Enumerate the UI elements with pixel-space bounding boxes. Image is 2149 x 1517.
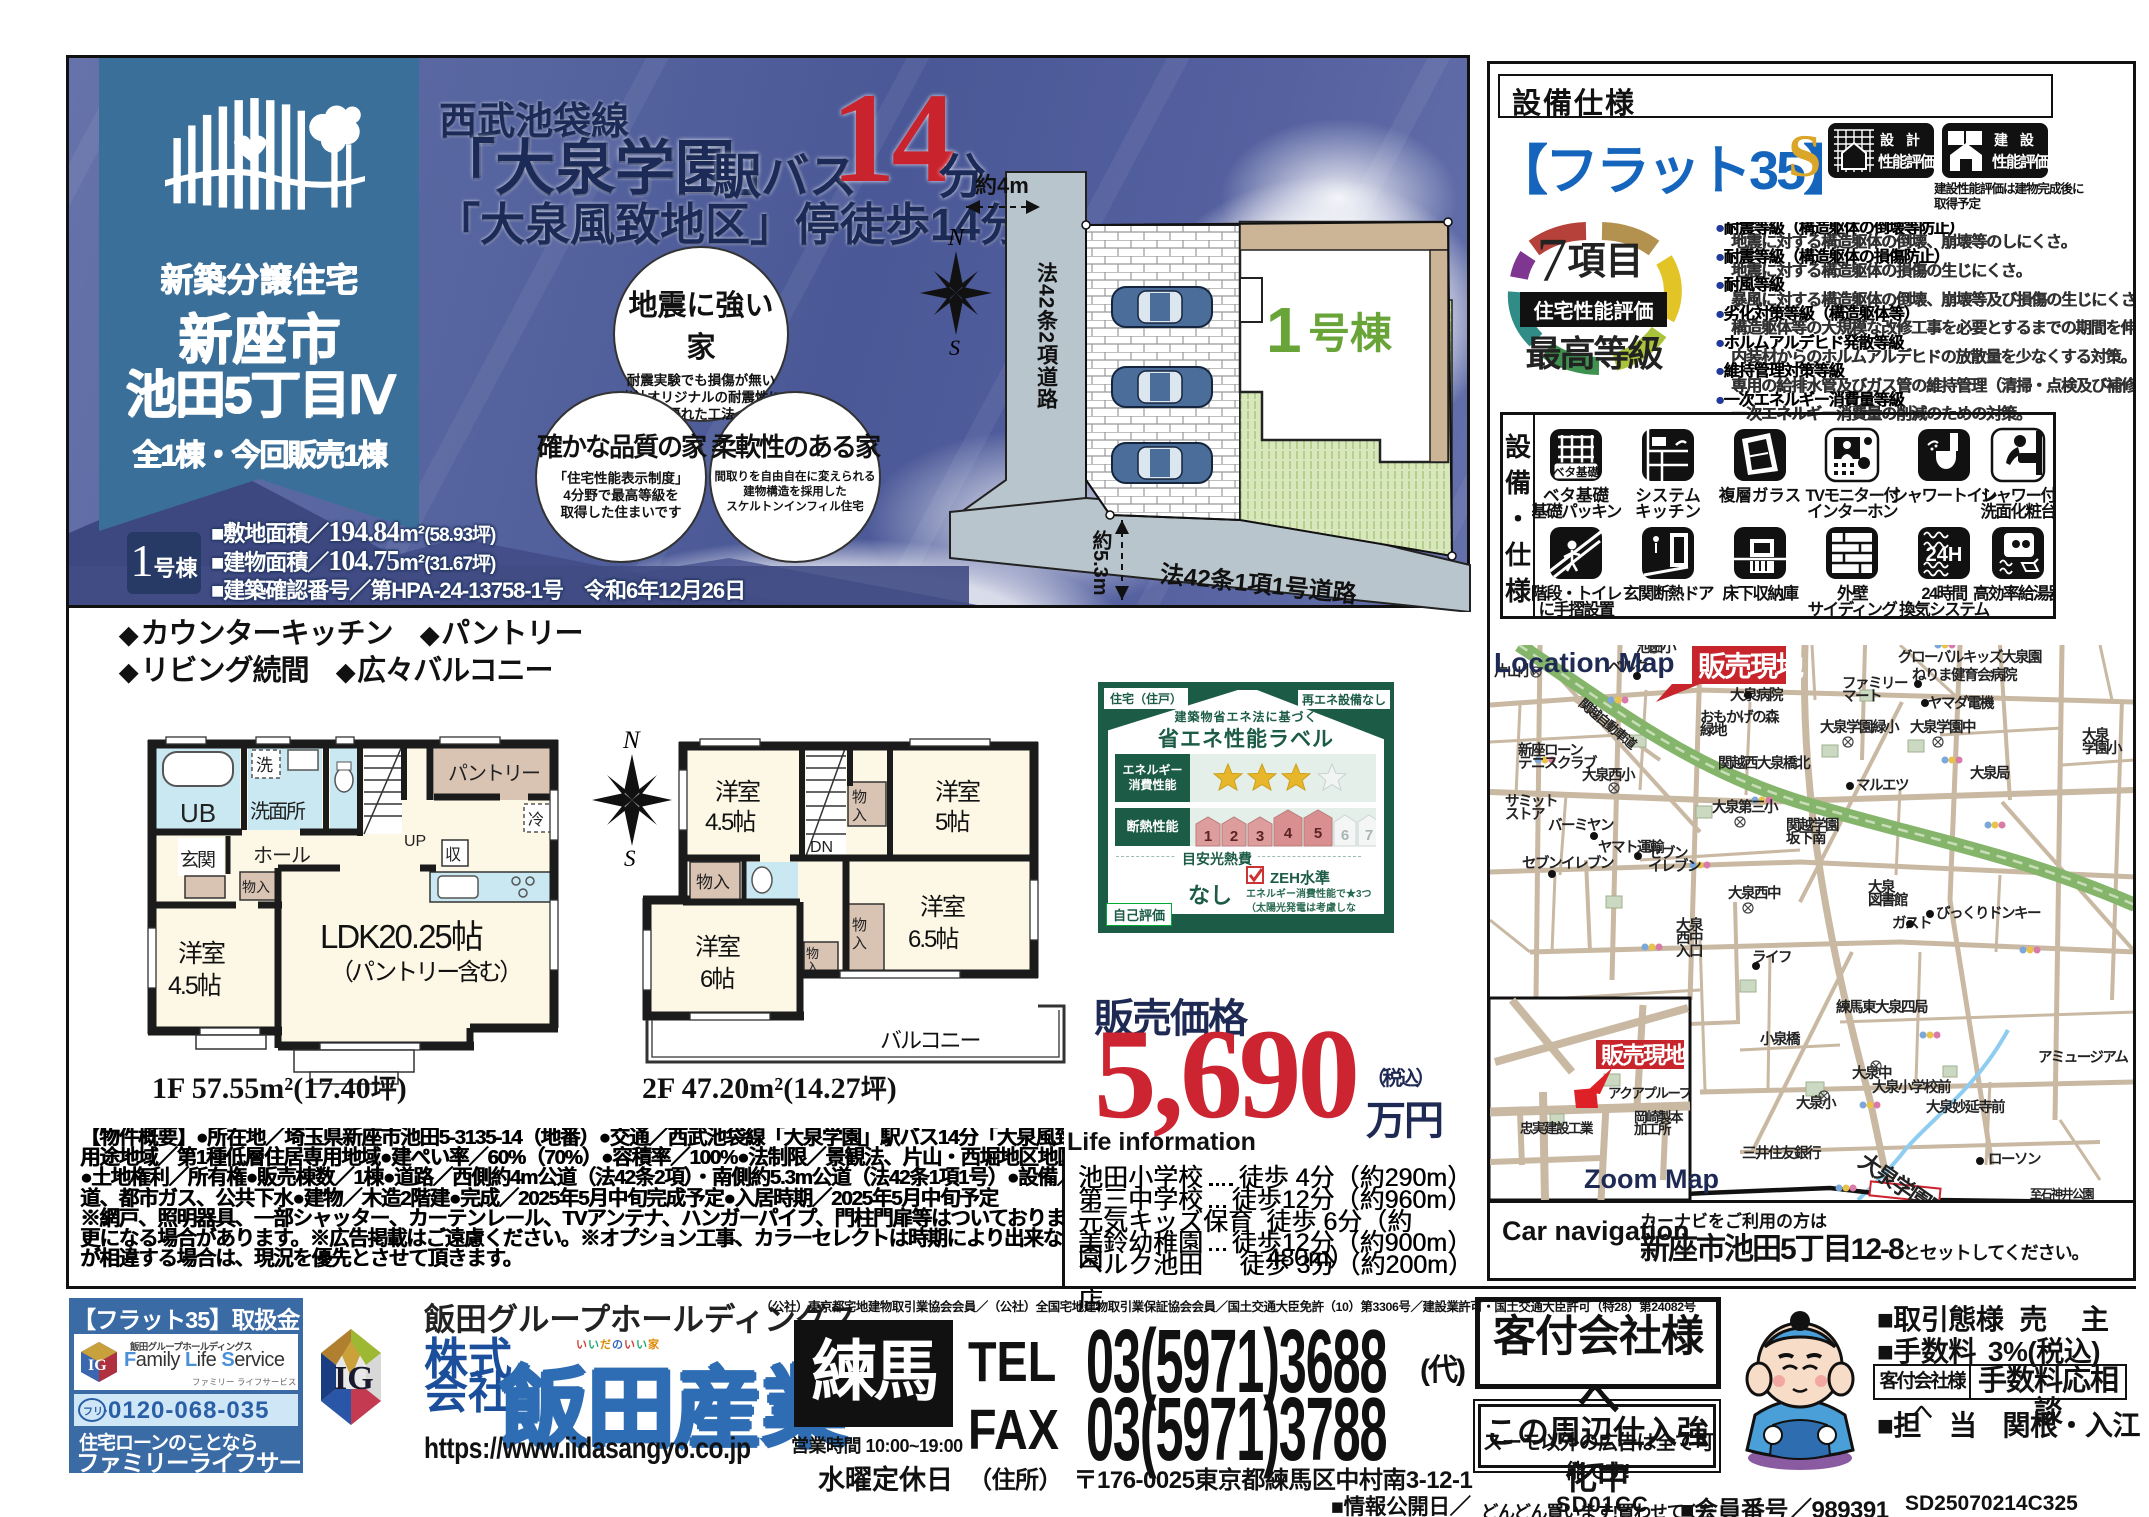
svg-text:インターホン: インターホン bbox=[1807, 502, 1898, 521]
svg-text:Location Map: Location Map bbox=[1494, 647, 1674, 678]
svg-text:物: 物 bbox=[806, 946, 819, 961]
svg-text:シャワー付: シャワー付 bbox=[1981, 485, 2057, 505]
svg-text:収: 収 bbox=[445, 846, 461, 864]
svg-text:ストア: ストア bbox=[1505, 807, 1545, 823]
svg-text:緑地: 緑地 bbox=[1700, 721, 1728, 739]
svg-text:バルコニー: バルコニー bbox=[880, 1028, 980, 1053]
svg-text:24H: 24H bbox=[1926, 544, 1963, 566]
svg-text:小泉橋: 小泉橋 bbox=[1760, 1030, 1801, 1048]
svg-text:入: 入 bbox=[852, 807, 867, 824]
svg-text:至石神井公園: 至石神井公園 bbox=[2030, 1186, 2095, 1201]
svg-text:大泉小: 大泉小 bbox=[1796, 1094, 1837, 1112]
svg-text:外壁: 外壁 bbox=[1837, 583, 1869, 603]
svg-text:7: 7 bbox=[1365, 827, 1373, 844]
svg-text:4.5帖: 4.5帖 bbox=[168, 972, 221, 1000]
svg-text:Zoom Map: Zoom Map bbox=[1584, 1164, 1719, 1194]
svg-text:IG: IG bbox=[88, 1357, 107, 1374]
svg-text:マート: マート bbox=[1842, 689, 1881, 705]
svg-text:に手摺設置: に手摺設置 bbox=[1539, 599, 1615, 617]
svg-text:S: S bbox=[624, 846, 636, 871]
svg-text:練馬東大泉四局: 練馬東大泉四局 bbox=[1836, 998, 1928, 1016]
svg-text:6帖: 6帖 bbox=[700, 966, 734, 993]
svg-text:ヤマダ電機: ヤマダ電機 bbox=[1928, 694, 1995, 712]
svg-text:大泉西小: 大泉西小 bbox=[1582, 766, 1636, 784]
svg-text:3: 3 bbox=[1256, 828, 1264, 845]
svg-text:6.5帖: 6.5帖 bbox=[908, 926, 958, 953]
svg-text:階段・トイレ: 階段・トイレ bbox=[1532, 583, 1622, 603]
svg-text:物入: 物入 bbox=[242, 879, 270, 895]
svg-text:びっくりドンキー: びっくりドンキー bbox=[1936, 905, 2041, 922]
svg-text:大泉第三小: 大泉第三小 bbox=[1712, 798, 1779, 816]
svg-text:UB: UB bbox=[180, 798, 216, 828]
svg-text:IG: IG bbox=[334, 1360, 374, 1397]
svg-text:大泉局: 大泉局 bbox=[1970, 764, 2010, 782]
svg-text:物: 物 bbox=[852, 917, 867, 934]
svg-text:N: N bbox=[622, 730, 641, 754]
svg-text:冷: 冷 bbox=[528, 811, 544, 829]
svg-text:イレブン: イレブン bbox=[1648, 857, 1701, 875]
svg-text:玄関: 玄関 bbox=[180, 849, 215, 871]
svg-text:ベタ基礎: ベタ基礎 bbox=[1543, 485, 1610, 505]
svg-text:ローソン: ローソン bbox=[1988, 1152, 2041, 1168]
svg-text:法42条2項道路: 法42条2項道路 bbox=[1035, 261, 1059, 410]
svg-text:高効率給湯器: 高効率給湯器 bbox=[1973, 583, 2056, 603]
svg-text:大泉西中: 大泉西中 bbox=[1728, 884, 1781, 902]
svg-text:4.5帖: 4.5帖 bbox=[705, 809, 755, 836]
svg-text:N: N bbox=[947, 225, 966, 251]
svg-text:加工所: 加工所 bbox=[1633, 1121, 1672, 1137]
svg-text:洗面所: 洗面所 bbox=[250, 800, 306, 823]
svg-text:床下収納庫: 床下収納庫 bbox=[1723, 583, 1800, 603]
svg-text:5: 5 bbox=[1314, 825, 1322, 842]
svg-text:基礎パッキン: 基礎パッキン bbox=[1532, 501, 1622, 521]
svg-text:図書館: 図書館 bbox=[1868, 891, 1908, 909]
svg-text:1: 1 bbox=[1266, 294, 1302, 366]
svg-text:ベタ基礎: ベタ基礎 bbox=[1553, 465, 1599, 479]
svg-text:キッチン: キッチン bbox=[1635, 503, 1701, 521]
svg-text:大泉学園緑小: 大泉学園緑小 bbox=[1820, 718, 1900, 736]
svg-text:（パントリー含む）: （パントリー含む） bbox=[330, 959, 520, 986]
svg-text:洗: 洗 bbox=[256, 756, 273, 775]
svg-text:24時間: 24時間 bbox=[1921, 583, 1967, 603]
svg-text:大泉小学校前: 大泉小学校前 bbox=[1872, 1078, 1952, 1096]
svg-text:忠実建設工業: 忠実建設工業 bbox=[1520, 1120, 1594, 1136]
svg-text:大泉妙延寺前: 大泉妙延寺前 bbox=[1926, 1098, 2006, 1116]
svg-text:マルエツ: マルエツ bbox=[1856, 778, 1909, 794]
svg-text:DN: DN bbox=[810, 839, 833, 856]
svg-text:性能評価: 性能評価 bbox=[1992, 152, 2048, 171]
svg-text:S: S bbox=[949, 335, 960, 360]
svg-text:性能評価: 性能評価 bbox=[1878, 152, 1934, 171]
svg-text:TVモニター付: TVモニター付 bbox=[1805, 485, 1900, 505]
svg-text:約5.3m: 約5.3m bbox=[1089, 529, 1112, 596]
svg-text:物入: 物入 bbox=[696, 873, 730, 892]
svg-text:販売現地: 販売現地 bbox=[1601, 1042, 1687, 1068]
svg-text:販売現地: 販売現地 bbox=[1698, 651, 1804, 682]
svg-text:学園小: 学園小 bbox=[2082, 739, 2123, 757]
svg-text:アクアプルーフ: アクアプルーフ bbox=[1608, 1086, 1691, 1101]
svg-text:アミュージアム: アミュージアム bbox=[2038, 1050, 2128, 1066]
svg-text:関越西大泉橋北: 関越西大泉橋北 bbox=[1718, 754, 1811, 772]
svg-text:5帖: 5帖 bbox=[935, 809, 969, 836]
svg-text:バーミヤン: バーミヤン bbox=[1548, 817, 1614, 834]
svg-text:2F 47.20m²(14.27坪): 2F 47.20m²(14.27坪) bbox=[642, 1072, 897, 1105]
svg-text:大泉病院: 大泉病院 bbox=[1730, 686, 1784, 704]
svg-text:玄関断熱ドア: 玄関断熱ドア bbox=[1623, 583, 1714, 603]
svg-text:洋室: 洋室 bbox=[920, 894, 965, 921]
svg-text:洋室: 洋室 bbox=[935, 779, 980, 806]
svg-text:1F 57.55m²(17.40坪): 1F 57.55m²(17.40坪) bbox=[152, 1072, 407, 1105]
svg-text:パントリー: パントリー bbox=[448, 763, 539, 785]
svg-text:入: 入 bbox=[852, 935, 867, 952]
svg-text:約4m: 約4m bbox=[975, 173, 1029, 198]
svg-text:複層ガラス: 複層ガラス bbox=[1718, 485, 1801, 505]
svg-text:入口: 入口 bbox=[1676, 943, 1702, 960]
svg-text:大泉学園中: 大泉学園中 bbox=[1910, 718, 1976, 736]
svg-text:6: 6 bbox=[1341, 827, 1349, 844]
svg-text:物: 物 bbox=[852, 789, 867, 806]
svg-text:洗面化粧台: 洗面化粧台 bbox=[1981, 501, 2057, 521]
svg-text:サイディング: サイディング bbox=[1808, 599, 1899, 617]
svg-text:LDK20.25帖: LDK20.25帖 bbox=[320, 918, 483, 955]
svg-text:グローバルキッズ大泉園: グローバルキッズ大泉園 bbox=[1898, 648, 2042, 666]
svg-text:セブンイレブン: セブンイレブン bbox=[1522, 854, 1614, 872]
svg-text:ホール: ホール bbox=[253, 845, 311, 867]
svg-text:洋室: 洋室 bbox=[715, 779, 760, 806]
svg-text:1: 1 bbox=[1204, 828, 1212, 845]
svg-text:建 設: 建 設 bbox=[1994, 132, 2038, 148]
svg-text:ねりま健育会病院: ねりま健育会病院 bbox=[1912, 666, 2018, 684]
svg-text:三井住友銀行: 三井住友銀行 bbox=[1742, 1144, 1822, 1162]
svg-text:坂下南: 坂下南 bbox=[1786, 829, 1826, 847]
svg-text:2: 2 bbox=[1230, 828, 1238, 845]
svg-text:フリー: フリー bbox=[83, 1406, 107, 1418]
svg-text:設 計: 設 計 bbox=[1880, 132, 1924, 148]
svg-text:UP: UP bbox=[404, 833, 426, 850]
svg-text:洋室: 洋室 bbox=[178, 940, 225, 968]
svg-text:洋室: 洋室 bbox=[695, 934, 740, 961]
svg-text:4: 4 bbox=[1284, 825, 1293, 842]
svg-text:号棟: 号棟 bbox=[1308, 310, 1393, 357]
